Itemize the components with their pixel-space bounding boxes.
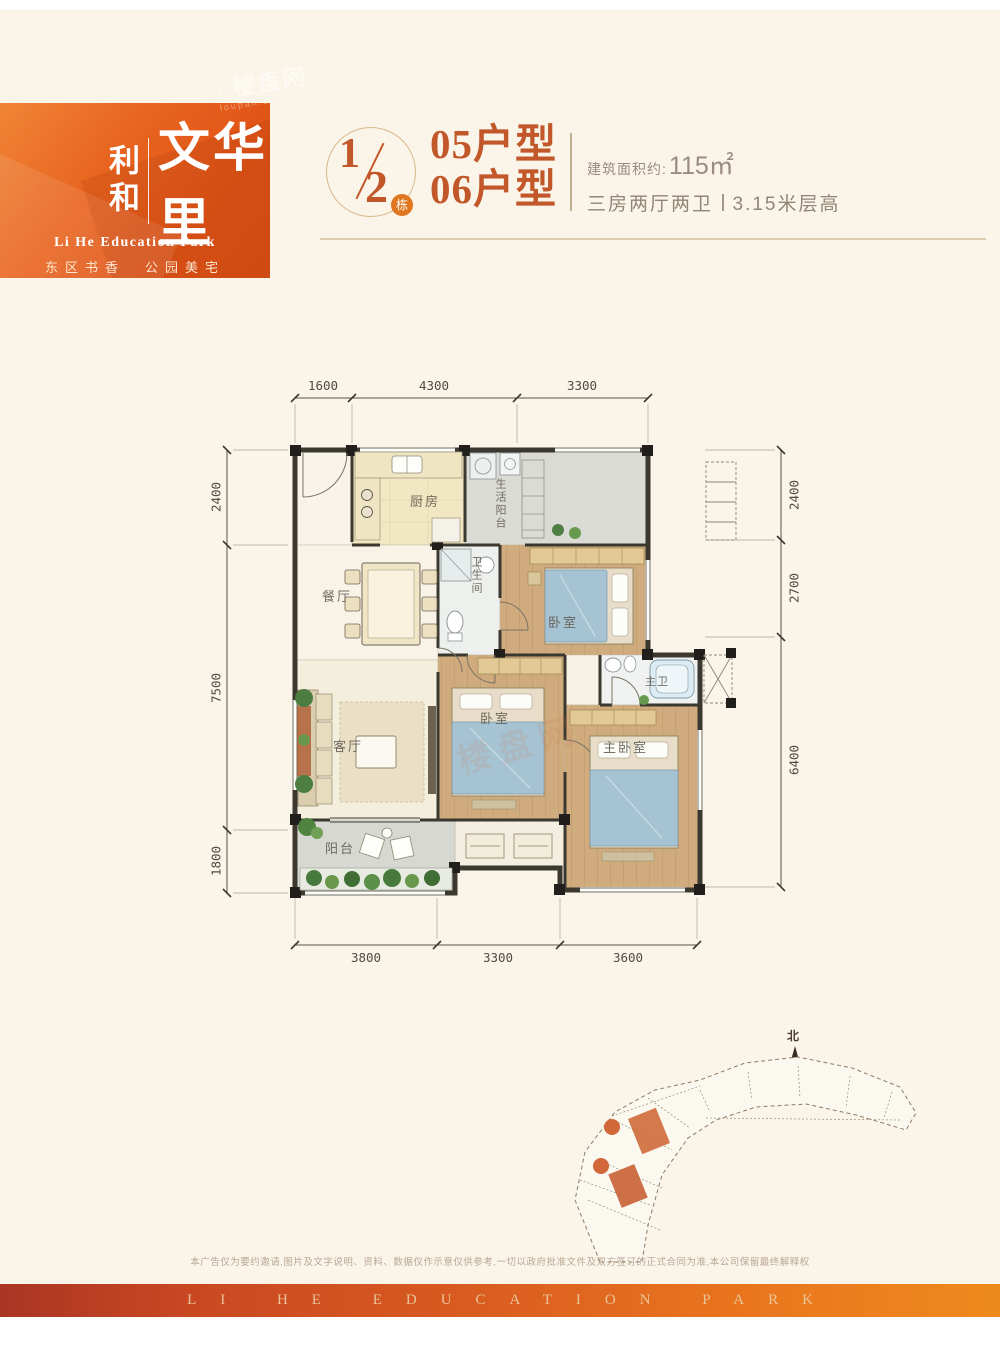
wardrobe [570, 710, 656, 725]
disclaimer-text: 本广告仅为要约邀请,图片及文字说明、资料、数据仅作示意仅供参考,一切以政府批准文… [0, 1254, 1000, 1268]
dim-top-1: 1600 [308, 378, 338, 393]
plant [639, 695, 649, 705]
flyer-page: 利和 文华里 Li He Education Park 东区书香 公园美宅 ⌂楼… [0, 0, 1000, 1366]
room-label-dining: 餐厅 [322, 586, 352, 605]
tv-bench [428, 706, 436, 794]
block-denominator: 2 [365, 160, 388, 213]
dim-left-1: 2400 [209, 482, 224, 512]
site-building-outline [575, 1057, 916, 1262]
brand-subtitle-en: Li He Education Park [0, 235, 270, 251]
dim-bottom-1: 3800 [351, 950, 381, 965]
spec-separator [722, 194, 724, 211]
site-unit-marker [593, 1158, 609, 1174]
dim-left-3: 1800 [209, 846, 224, 876]
unit-type-titles: 05户型 06户型 [430, 122, 557, 212]
entry-floor [295, 450, 352, 545]
logo-divider [148, 138, 149, 224]
plant [569, 527, 581, 539]
dim-bottom-2: 3300 [483, 950, 513, 965]
block-badge: 栋 [391, 194, 413, 216]
room-label-living: 客厅 [333, 736, 363, 755]
wardrobe [530, 548, 644, 564]
dim-bottom-3: 3600 [613, 950, 643, 965]
spec-height: 3.15米层高 [733, 189, 841, 216]
header-rule [320, 238, 986, 240]
area-value: 115㎡ [669, 146, 734, 182]
dim-right-1: 2400 [787, 480, 802, 510]
room-label-kitchen: 厨房 [410, 491, 440, 510]
bed-bench [602, 852, 654, 861]
bottom-margin [0, 1317, 1000, 1366]
bed-bench [472, 800, 516, 809]
top-margin [0, 0, 1000, 10]
room-label-balcony: 阳台 [325, 838, 355, 857]
dim-right-3: 6400 [787, 745, 802, 775]
room-label-bedroom-top: 卧室 [548, 612, 578, 631]
footer-band-text: LI HE EDUCATION PARK [163, 1292, 837, 1309]
spec-rooms: 三房两厅两卫 [587, 189, 713, 216]
dim-top-3: 3300 [567, 378, 597, 393]
unit-type-06: 06户型 [430, 167, 557, 212]
bedroom-top-furniture [528, 548, 644, 644]
dining-table [345, 563, 437, 645]
unit-type-05: 05户型 [430, 122, 557, 167]
north-label: 北 [787, 1027, 799, 1044]
living-room-furniture [298, 690, 436, 806]
block-number-circle: 1 2 栋 [326, 127, 416, 217]
floor-plan [180, 360, 830, 970]
brand-name-left: 利和 [104, 144, 138, 218]
room-label-bathroom: 卫生间 [468, 556, 484, 595]
dim-top-2: 4300 [419, 378, 449, 393]
dim-left-2: 7500 [209, 673, 224, 703]
hall-floor [565, 655, 600, 705]
brand-name-main: 文华里 [158, 106, 270, 256]
ac-platforms [704, 462, 736, 708]
block-numerator: 1 [339, 130, 360, 178]
toilet [624, 656, 636, 672]
room-label-service-balcony: 生活阳台 [492, 478, 508, 530]
footer-band: LI HE EDUCATION PARK [0, 1284, 1000, 1317]
area-label: 建筑面积约: [587, 159, 667, 179]
plant [552, 524, 564, 536]
sink [605, 658, 621, 672]
brand-logo-block: 利和 文华里 Li He Education Park 东区书香 公园美宅 [0, 103, 270, 278]
site-unit-marker [604, 1119, 620, 1135]
room-label-master-bath: 主卫 [645, 673, 669, 689]
nightstand [528, 572, 541, 585]
dim-right-2: 2700 [787, 573, 802, 603]
brand-tagline: 东区书香 公园美宅 [0, 257, 270, 276]
header-divider [570, 133, 572, 211]
site-plan [555, 1020, 925, 1265]
room-label-master-bedroom: 主卧室 [603, 737, 648, 756]
watermark-loupan: ⌂楼盘网 loupan.com [216, 69, 311, 115]
header-specs: 建筑面积约: 115㎡ 三房两厅两卫 3.15米层高 [587, 146, 841, 216]
